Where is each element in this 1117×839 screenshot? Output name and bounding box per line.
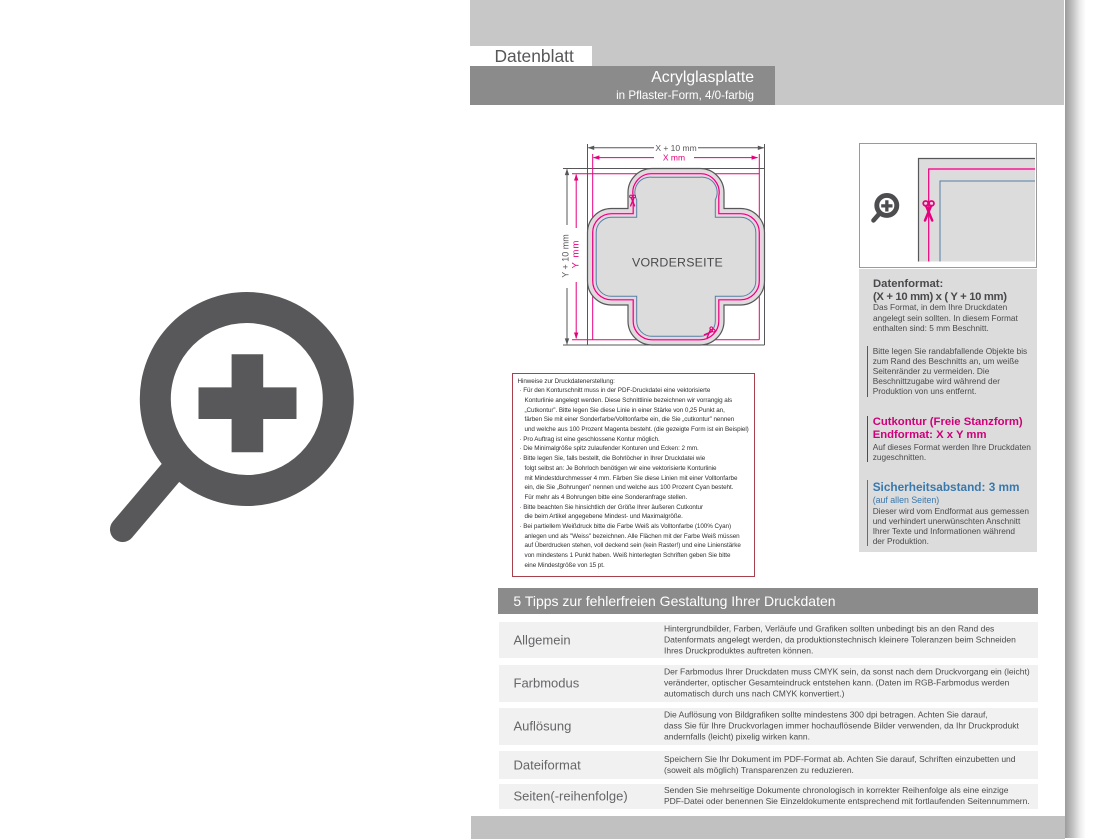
svg-text:Y + 10 mm: Y + 10 mm <box>561 234 571 278</box>
svg-text:X mm: X mm <box>663 153 685 163</box>
svg-text:Y mm: Y mm <box>571 239 582 268</box>
svg-text:VORDERSEITE: VORDERSEITE <box>632 255 723 269</box>
svg-text:X + 10 mm: X + 10 mm <box>655 143 696 153</box>
